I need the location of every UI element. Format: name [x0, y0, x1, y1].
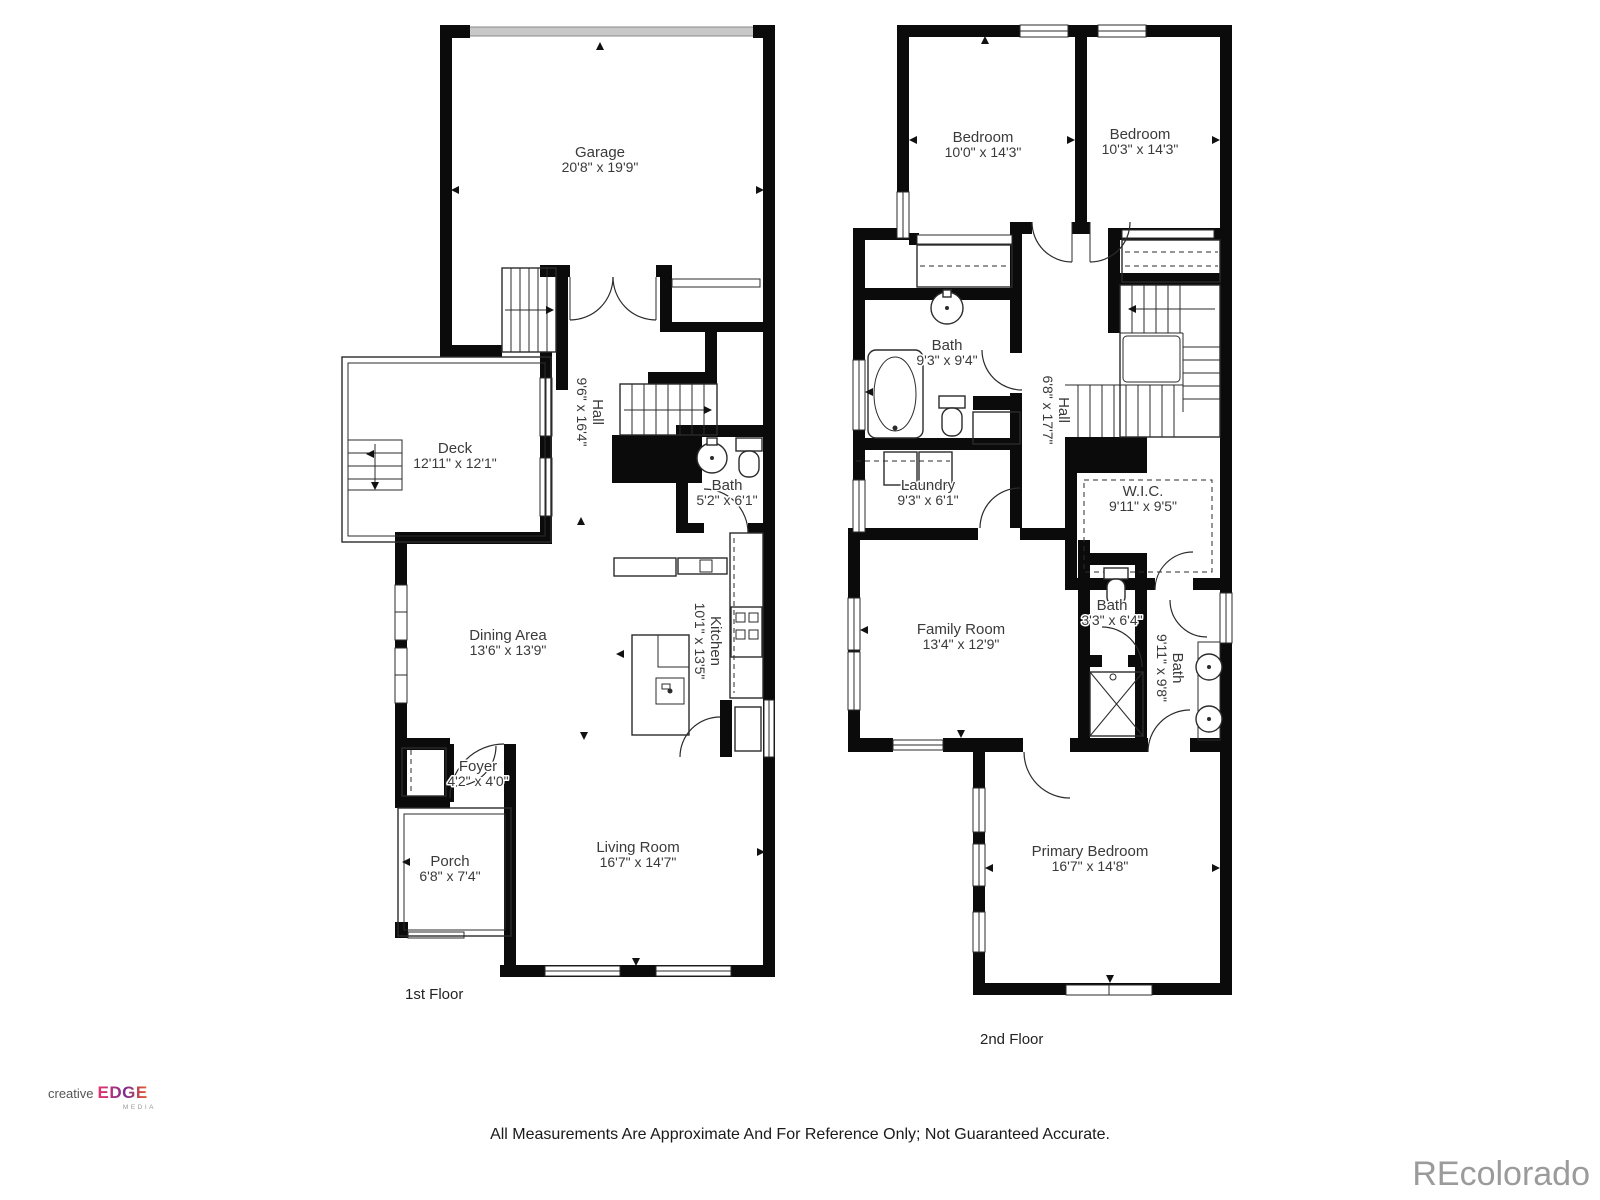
garage-door	[468, 27, 755, 36]
svg-text:10'1" x 13'5": 10'1" x 13'5"	[692, 603, 708, 680]
svg-text:16'7" x 14'8": 16'7" x 14'8"	[1052, 858, 1129, 874]
creative-edge-media-logo: creativeEDGE MEDIA	[48, 1083, 158, 1111]
closet-sliding-door	[672, 279, 760, 287]
floor-plan-canvas: Garage 20'8" x 19'9" Hall 9'6" x 16'4" D…	[0, 0, 1600, 1120]
room-label-bath-hall: Bath 9'3" x 9'4"	[916, 337, 977, 368]
staircase	[502, 268, 556, 352]
svg-text:9'3" x 9'4": 9'3" x 9'4"	[916, 352, 977, 368]
door-arc	[982, 350, 1022, 390]
room-label-family: Family Room 13'4" x 12'9"	[917, 621, 1005, 652]
room-label-bath-primary: Bath 9'11" x 9'8"	[1154, 634, 1186, 702]
room-label-dining: Dining Area 13'6" x 13'9"	[469, 627, 547, 658]
toilet	[939, 396, 965, 436]
stove	[731, 607, 762, 657]
svg-text:5'2" x 6'1": 5'2" x 6'1"	[696, 492, 757, 508]
toilet	[736, 438, 762, 477]
room-label-porch: Porch 6'8" x 7'4"	[419, 853, 480, 884]
svg-text:Hall: Hall	[589, 399, 606, 425]
foyer-closet	[402, 748, 446, 796]
svg-text:Bath: Bath	[1169, 653, 1186, 684]
room-label-hall: Hall 9'6" x 16'4"	[574, 378, 606, 447]
svg-text:13'4" x 12'9": 13'4" x 12'9"	[923, 636, 1000, 652]
entry-niche	[735, 707, 761, 751]
door-arc	[1024, 752, 1070, 798]
door-arc	[680, 717, 720, 757]
room-label-bedroom-right: Bedroom 10'3" x 14'3"	[1102, 126, 1179, 157]
double-sinks	[1196, 642, 1222, 740]
svg-text:3'3" x 6'4": 3'3" x 6'4"	[1081, 612, 1142, 628]
svg-text:6'8" x 17'7": 6'8" x 17'7"	[1040, 376, 1056, 445]
floor-plan-2nd: Bedroom 10'0" x 14'3" Bedroom 10'3" x 14…	[848, 25, 1232, 1048]
disclaimer-text: All Measurements Are Approximate And For…	[490, 1126, 1110, 1144]
room-label-garage: Garage 20'8" x 19'9"	[562, 144, 639, 175]
logo-brand: EDGE	[98, 1083, 148, 1103]
svg-text:13'6" x 13'9": 13'6" x 13'9"	[470, 642, 547, 658]
floor-label-2nd: 2nd Floor	[980, 1031, 1043, 1048]
room-label-deck: Deck 12'11" x 12'1"	[413, 440, 497, 471]
svg-text:Kitchen: Kitchen	[707, 616, 724, 666]
logo-sub: MEDIA	[48, 1104, 158, 1111]
svg-text:20'8" x 19'9": 20'8" x 19'9"	[562, 159, 639, 175]
svg-text:12'11" x 12'1": 12'11" x 12'1"	[413, 455, 497, 471]
room-label-wic: W.I.C. 9'11" x 9'5"	[1109, 483, 1177, 514]
svg-text:Hall: Hall	[1055, 397, 1072, 423]
svg-text:9'11" x 9'5": 9'11" x 9'5"	[1109, 498, 1177, 514]
door-arc	[1170, 600, 1207, 637]
logo-word: creative	[48, 1086, 94, 1101]
recolorado-watermark: REcolorado	[1412, 1155, 1590, 1194]
svg-text:10'0" x 14'3": 10'0" x 14'3"	[945, 144, 1022, 160]
room-label-bedroom-left: Bedroom 10'0" x 14'3"	[945, 129, 1022, 160]
door-arc	[570, 277, 656, 320]
svg-text:4'2" x 4'0": 4'2" x 4'0"	[447, 773, 508, 789]
room-label-foyer: Foyer 4'2" x 4'0"	[447, 758, 508, 789]
bathtub	[868, 350, 923, 438]
door-arc	[1148, 710, 1190, 752]
svg-text:9'3" x 6'1": 9'3" x 6'1"	[897, 492, 958, 508]
door-arc	[1155, 552, 1193, 590]
svg-text:9'6" x 16'4": 9'6" x 16'4"	[574, 378, 590, 447]
room-label-living: Living Room 16'7" x 14'7"	[596, 839, 679, 870]
room-label-bath-small: Bath 3'3" x 6'4"	[1081, 597, 1142, 628]
svg-text:10'3" x 14'3": 10'3" x 14'3"	[1102, 141, 1179, 157]
kitchen-island	[632, 635, 689, 735]
room-label-primary: Primary Bedroom 16'7" x 14'8"	[1032, 843, 1149, 874]
room-label-bath: Bath 5'2" x 6'1"	[696, 477, 757, 508]
staircase	[1065, 285, 1220, 437]
floor-plan-1st: Garage 20'8" x 19'9" Hall 9'6" x 16'4" D…	[342, 25, 775, 1003]
room-label-hall: Hall 6'8" x 17'7"	[1040, 376, 1072, 445]
floor-label-1st: 1st Floor	[405, 986, 463, 1003]
svg-text:9'11" x 9'8": 9'11" x 9'8"	[1154, 634, 1170, 702]
room-label-laundry: Laundry 9'3" x 6'1"	[897, 477, 958, 508]
svg-text:6'8" x 7'4": 6'8" x 7'4"	[419, 868, 480, 884]
room-label-kitchen: Kitchen 10'1" x 13'5"	[692, 603, 724, 680]
svg-text:16'7" x 14'7": 16'7" x 14'7"	[600, 854, 677, 870]
floor-plan-page: Garage 20'8" x 19'9" Hall 9'6" x 16'4" D…	[0, 0, 1600, 1200]
